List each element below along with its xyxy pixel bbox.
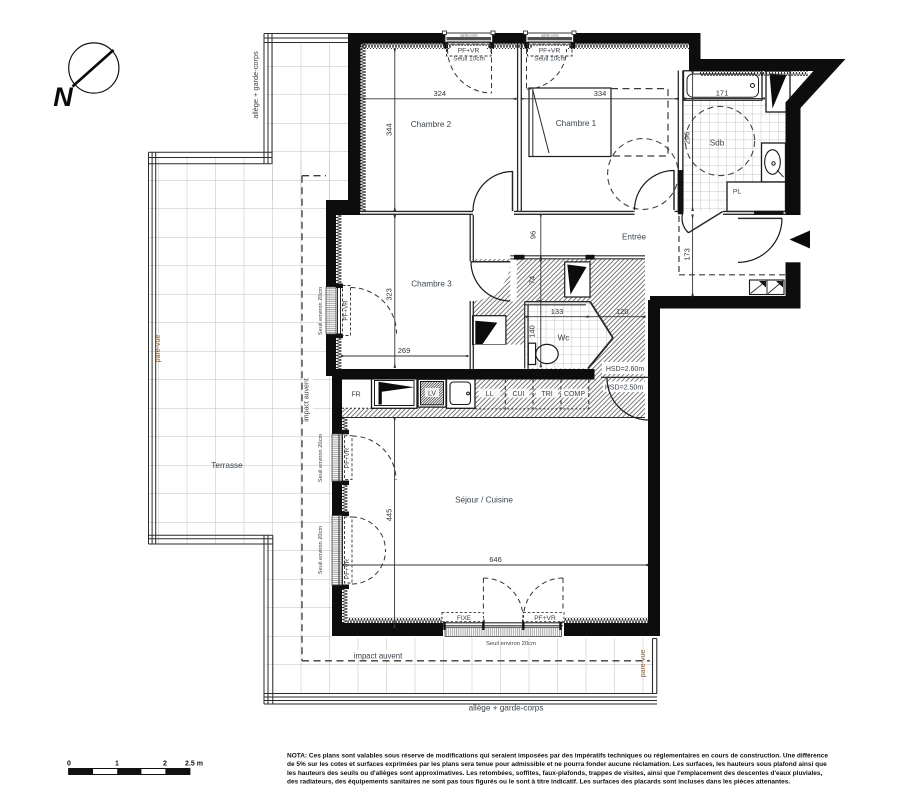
svg-text:de 5% sur les cotes et surface: de 5% sur les cotes et surfaces exprimée… <box>287 761 827 768</box>
svg-text:323: 323 <box>385 288 394 301</box>
svg-text:Chambre 2: Chambre 2 <box>411 120 452 129</box>
svg-text:344: 344 <box>385 123 394 136</box>
svg-text:334: 334 <box>594 89 607 98</box>
svg-text:PF+VR: PF+VR <box>344 558 351 579</box>
svg-text:garde-corps: garde-corps <box>460 33 478 37</box>
svg-text:PF+VR: PF+VR <box>534 615 556 622</box>
svg-text:garde-corps: garde-corps <box>541 33 559 37</box>
svg-text:Seuil environ 20cm: Seuil environ 20cm <box>318 287 324 336</box>
svg-text:des radiateurs, des équipement: des radiateurs, des équipements sanitair… <box>287 778 790 785</box>
svg-text:HSD=2.60m: HSD=2.60m <box>606 366 644 373</box>
svg-text:LL: LL <box>486 391 494 398</box>
svg-text:FIXE: FIXE <box>457 615 471 622</box>
svg-text:allège + garde-corps: allège + garde-corps <box>469 704 544 713</box>
svg-text:Seuil 10cm: Seuil 10cm <box>453 56 485 63</box>
svg-text:Seuil environ 20cm: Seuil environ 20cm <box>486 641 536 647</box>
svg-text:Chambre 3: Chambre 3 <box>411 280 452 289</box>
svg-text:171: 171 <box>716 89 729 98</box>
svg-text:pare-vue: pare-vue <box>155 335 162 363</box>
svg-text:PF+VR: PF+VR <box>344 447 351 468</box>
svg-text:FR: FR <box>351 392 360 399</box>
svg-text:allège + garde-corps: allège + garde-corps <box>251 51 260 119</box>
svg-text:173: 173 <box>682 248 691 261</box>
svg-text:133: 133 <box>551 307 564 316</box>
svg-text:646: 646 <box>489 555 502 564</box>
svg-text:Chambre 1: Chambre 1 <box>556 119 597 128</box>
svg-text:140: 140 <box>528 325 537 338</box>
svg-text:0: 0 <box>67 760 71 767</box>
svg-text:LV: LV <box>428 391 436 398</box>
svg-text:impact auvent: impact auvent <box>354 652 403 661</box>
svg-text:COMP: COMP <box>564 391 585 398</box>
svg-text:PF+VR: PF+VR <box>343 300 350 321</box>
svg-text:HSD=2.50m: HSD=2.50m <box>605 385 643 392</box>
svg-text:269: 269 <box>398 346 411 355</box>
svg-text:96: 96 <box>529 231 538 239</box>
svg-text:Seuil environ 20cm: Seuil environ 20cm <box>318 434 324 483</box>
svg-text:NOTA: Ces plans sont valables: NOTA: Ces plans sont valables sous réser… <box>287 753 828 760</box>
svg-text:445: 445 <box>384 509 393 522</box>
svg-text:Entrée: Entrée <box>622 232 647 241</box>
svg-text:PL: PL <box>733 189 742 196</box>
svg-text:pare-vue: pare-vue <box>640 650 647 678</box>
svg-text:Seuil 10cm: Seuil 10cm <box>534 56 566 63</box>
svg-text:74: 74 <box>528 276 537 284</box>
svg-text:Seuil environ 20cm: Seuil environ 20cm <box>318 526 324 575</box>
svg-text:PF+VR: PF+VR <box>539 48 561 55</box>
svg-text:Wc: Wc <box>558 333 570 342</box>
svg-text:296: 296 <box>682 132 691 145</box>
svg-text:2.5 m: 2.5 m <box>185 760 203 767</box>
svg-text:les hauteurs des seuils ou d'a: les hauteurs des seuils ou d'allèges son… <box>287 770 822 777</box>
svg-text:PF+VR: PF+VR <box>458 48 480 55</box>
svg-text:1: 1 <box>115 760 119 767</box>
svg-text:2: 2 <box>163 760 167 767</box>
svg-text:120: 120 <box>616 307 629 316</box>
svg-text:Sdb: Sdb <box>710 138 725 147</box>
svg-text:Séjour / Cuisine: Séjour / Cuisine <box>455 495 513 504</box>
svg-text:N: N <box>53 82 73 112</box>
svg-text:CUI: CUI <box>512 391 524 398</box>
svg-text:Terrasse: Terrasse <box>211 461 243 470</box>
svg-text:impact auvent: impact auvent <box>304 378 311 422</box>
svg-text:324: 324 <box>434 89 447 98</box>
svg-text:TRI: TRI <box>541 391 552 398</box>
